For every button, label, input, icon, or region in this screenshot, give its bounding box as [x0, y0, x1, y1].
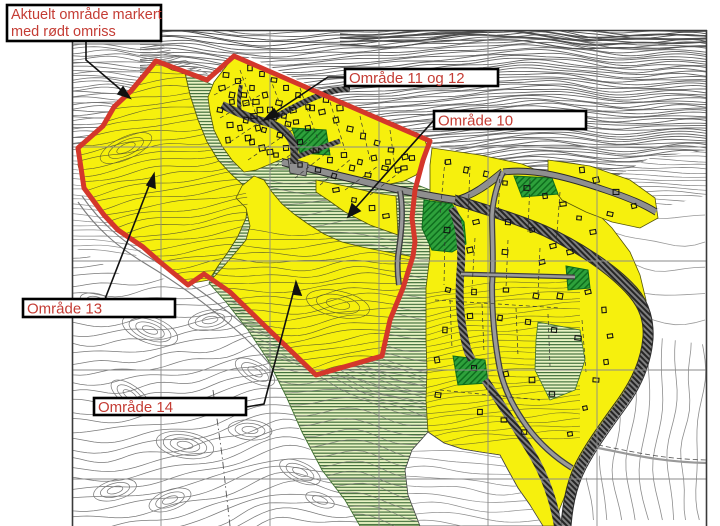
svg-text:Område 13: Område 13 [27, 301, 102, 318]
svg-text:Område 14: Område 14 [98, 399, 173, 416]
svg-text:Område 11 og 12: Område 11 og 12 [349, 70, 465, 87]
svg-text:med rødt omriss: med rødt omriss [11, 24, 116, 40]
svg-text:Område 10: Område 10 [438, 113, 513, 130]
svg-text:Aktuelt område markert: Aktuelt område markert [11, 7, 162, 23]
